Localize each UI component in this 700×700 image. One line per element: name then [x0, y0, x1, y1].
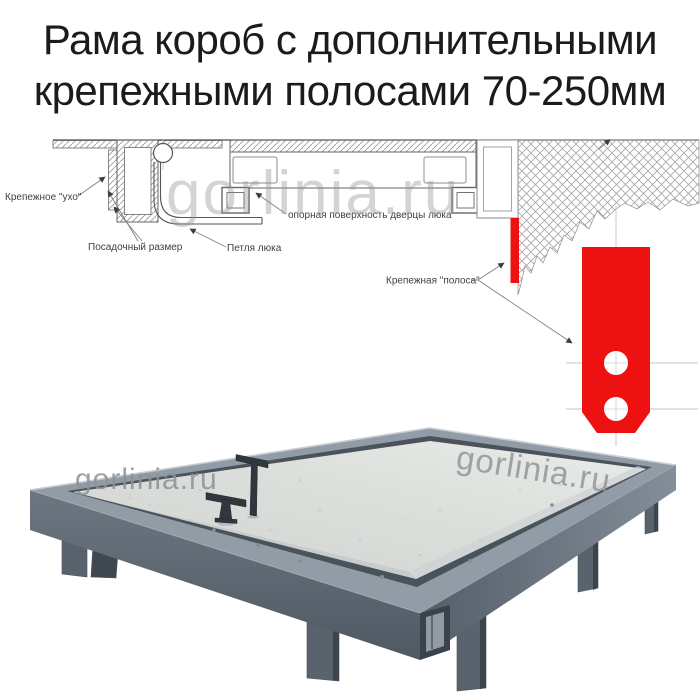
product-photo: gorlinia.ru gorlinia.ru	[30, 428, 676, 691]
watermark-diagram: gorlinia.ru	[166, 159, 460, 228]
mounting-strip-section	[511, 218, 520, 283]
title-line-2: крепежными полосами 70-250мм	[0, 65, 700, 116]
title-line-1: Рама короб с дополнительными	[0, 14, 700, 65]
frame-profile-right	[477, 140, 518, 218]
t-handle-stem	[250, 461, 258, 517]
product-card: Рама короб с дополнительными крепежными …	[0, 0, 700, 700]
figure: Крепежное "ухо" Посадочный размер Петля …	[0, 118, 700, 700]
label-hinge: Петля люка	[227, 243, 282, 254]
page-title: Рама короб с дополнительными крепежными …	[0, 14, 700, 116]
label-seat-size: Посадочный размер	[88, 242, 183, 253]
label-mounting-ear: Крепежное "ухо"	[5, 192, 82, 203]
corner-zinc-liner	[426, 612, 444, 652]
mounting-ear	[109, 150, 118, 210]
watermark-photo-left: gorlinia.ru	[75, 463, 218, 496]
label-mounting-strip: Крепежная "полоса"	[386, 276, 480, 287]
technical-drawing: Крепежное "ухо" Посадочный размер Петля …	[5, 139, 699, 446]
